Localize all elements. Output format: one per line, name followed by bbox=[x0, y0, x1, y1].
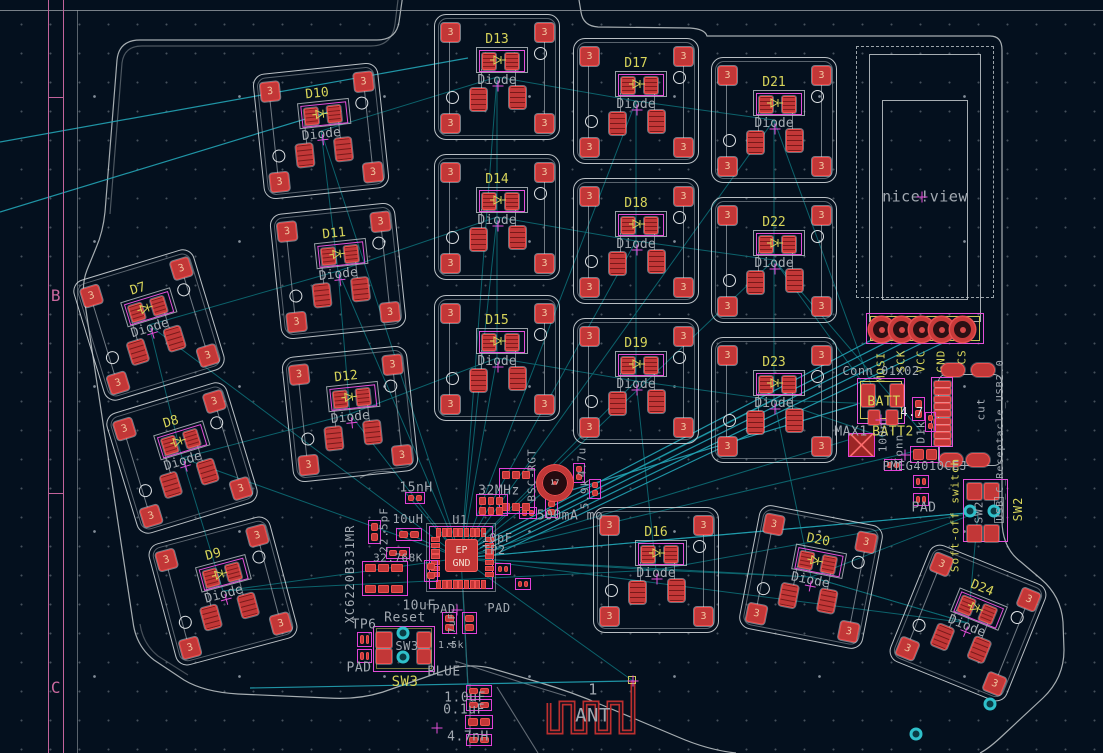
diode-symbol-icon bbox=[341, 391, 358, 403]
anchor-cross bbox=[917, 192, 928, 203]
footprint-anchor bbox=[334, 274, 346, 286]
usb-pin-pad bbox=[934, 410, 951, 417]
pcb-canvas[interactable]: BC nice!view MOSISCKVCCGNDCS bbox=[0, 0, 1103, 753]
mcu-pad bbox=[442, 580, 447, 589]
frame-hline bbox=[0, 10, 1103, 11]
passive-component[interactable] bbox=[424, 560, 438, 582]
mount-pad[interactable]: 3 bbox=[580, 278, 599, 297]
diode-pad[interactable] bbox=[355, 388, 371, 406]
mcu-pad bbox=[447, 528, 452, 537]
mount-pad[interactable]: 3 bbox=[600, 607, 619, 626]
diode-symbol-icon bbox=[767, 238, 783, 248]
footprint-anchor bbox=[493, 81, 504, 92]
mcu-pad bbox=[453, 580, 458, 589]
footprint-anchor bbox=[804, 580, 817, 593]
silk-label: 4.7nH bbox=[447, 731, 489, 744]
diode-symbol-icon bbox=[629, 359, 645, 369]
locating-hole bbox=[723, 274, 736, 287]
silk-label: SW2 bbox=[1012, 497, 1024, 522]
key-D14[interactable]: 3333D14Diode bbox=[434, 154, 560, 280]
diode-pad[interactable] bbox=[505, 53, 519, 70]
mount-pad[interactable]: 3 bbox=[838, 621, 860, 643]
diode-symbol-icon bbox=[629, 79, 645, 89]
key-D23[interactable]: 3333D23Diode bbox=[711, 337, 837, 463]
switch-pad[interactable] bbox=[470, 369, 487, 392]
diode-symbol-icon bbox=[490, 55, 506, 65]
key-D10[interactable]: 3333D10Diode bbox=[252, 62, 390, 200]
key-D9[interactable]: 3333D9Diode bbox=[146, 514, 300, 668]
silk-label: 1 bbox=[588, 683, 598, 698]
switch-pad[interactable] bbox=[295, 143, 314, 168]
mount-pad[interactable]: 3 bbox=[812, 157, 831, 176]
footprint-anchor bbox=[493, 362, 504, 373]
key-reference: D22 bbox=[711, 215, 837, 230]
diode-symbol-icon bbox=[767, 378, 783, 388]
mount-pad[interactable]: 3 bbox=[441, 395, 460, 414]
ic-component[interactable] bbox=[362, 561, 408, 596]
locating-hole bbox=[585, 255, 598, 268]
passive-component[interactable] bbox=[357, 632, 372, 647]
usb-pin-pad bbox=[934, 418, 951, 425]
key-D24[interactable]: 3333D24Diode bbox=[886, 541, 1050, 705]
frame-row-label: B bbox=[51, 288, 61, 304]
diode-symbol-icon bbox=[629, 219, 645, 229]
locating-hole bbox=[534, 47, 547, 60]
switch-pad[interactable] bbox=[363, 420, 382, 445]
switch-pad[interactable] bbox=[351, 277, 370, 302]
mcu-pad bbox=[431, 554, 440, 559]
switch-pad[interactable] bbox=[786, 269, 803, 292]
key-reference: D15 bbox=[434, 313, 560, 328]
passive-component[interactable] bbox=[515, 578, 531, 590]
mcu-pad bbox=[436, 528, 441, 537]
mount-pad[interactable]: 3 bbox=[812, 297, 831, 316]
diode-pad[interactable] bbox=[664, 546, 678, 563]
switch-pad[interactable] bbox=[609, 252, 626, 275]
key-reference: D19 bbox=[573, 336, 699, 351]
footprint-anchor bbox=[770, 264, 781, 275]
key-reference: D18 bbox=[573, 196, 699, 211]
mcu-pad bbox=[458, 580, 463, 589]
key-reference: D17 bbox=[573, 56, 699, 71]
switch-pad[interactable] bbox=[324, 426, 343, 451]
frame-row-label: C bbox=[51, 680, 61, 696]
passive-component[interactable] bbox=[913, 475, 929, 488]
silk-label: SW2 bbox=[974, 501, 985, 524]
locating-hole bbox=[585, 115, 598, 128]
diode-symbol-icon bbox=[767, 98, 783, 108]
usb-pin-pad bbox=[934, 388, 951, 395]
locating-hole bbox=[585, 395, 598, 408]
footprint-anchor bbox=[493, 221, 504, 232]
switch-pad[interactable] bbox=[786, 409, 803, 432]
mount-pad[interactable]: 3 bbox=[674, 138, 693, 157]
passive-component[interactable] bbox=[396, 528, 422, 541]
frame-tick bbox=[48, 97, 63, 98]
switch-pad[interactable] bbox=[609, 392, 626, 415]
footprint-anchor bbox=[632, 245, 643, 256]
passive-component[interactable] bbox=[495, 563, 511, 575]
footprint-anchor bbox=[346, 417, 358, 429]
switch-pad[interactable] bbox=[668, 579, 685, 602]
silk-label: 15nH bbox=[399, 482, 432, 495]
mount-pad[interactable]: 3 bbox=[694, 607, 713, 626]
mount-pad[interactable]: 3 bbox=[535, 395, 554, 414]
diode-symbol-icon bbox=[329, 248, 346, 260]
key-reference: D14 bbox=[434, 172, 560, 187]
mcu-pad bbox=[475, 580, 480, 589]
mount-pad[interactable]: 3 bbox=[269, 172, 290, 193]
silk-label: BATT bbox=[867, 396, 900, 409]
silk-label: BLUE bbox=[427, 666, 460, 679]
key-reference: D23 bbox=[711, 355, 837, 370]
switch-pad[interactable] bbox=[786, 129, 803, 152]
mcu-pad bbox=[464, 528, 469, 537]
key-D11[interactable]: 3333D11Diode bbox=[269, 202, 407, 340]
back-copper-pad[interactable] bbox=[984, 698, 997, 711]
diode-symbol-icon bbox=[490, 195, 506, 205]
usb-pin-pad bbox=[934, 432, 951, 439]
silk-label: 5.9k bbox=[580, 479, 591, 510]
switch-pad[interactable] bbox=[509, 86, 526, 109]
switch-pad[interactable] bbox=[747, 271, 764, 294]
key-D19[interactable]: 3333D19Diode bbox=[573, 318, 699, 444]
diode-symbol-icon bbox=[312, 108, 329, 120]
switch-pad[interactable] bbox=[509, 226, 526, 249]
usb-pin-pad bbox=[934, 425, 951, 432]
back-copper-pad[interactable] bbox=[910, 728, 923, 741]
locating-hole bbox=[811, 370, 824, 383]
key-D8[interactable]: 3333D8Diode bbox=[103, 379, 260, 536]
diode-pad[interactable] bbox=[326, 105, 342, 123]
switch-pad[interactable] bbox=[629, 581, 646, 604]
diode-symbol-icon bbox=[490, 336, 506, 346]
silk-label: TP2 bbox=[482, 544, 505, 556]
locating-hole bbox=[723, 414, 736, 427]
mount-pad[interactable]: 3 bbox=[535, 114, 554, 133]
switch-pad[interactable] bbox=[609, 112, 626, 135]
locating-hole bbox=[811, 90, 824, 103]
mcu-pad bbox=[485, 560, 494, 565]
silk-label: 0.1uF bbox=[443, 704, 485, 717]
passive-component[interactable] bbox=[462, 612, 477, 634]
switch-pad[interactable] bbox=[747, 131, 764, 154]
mcu-pad bbox=[431, 537, 440, 542]
diode-pad[interactable] bbox=[505, 193, 519, 210]
usb-pin-pad bbox=[934, 403, 951, 410]
anchor-cross bbox=[900, 450, 911, 461]
mcu-pad bbox=[447, 580, 452, 589]
mount-pad[interactable]: 3 bbox=[718, 297, 737, 316]
silk-label: Soft-off switch bbox=[950, 458, 961, 572]
silk-label: XC6220B331MR bbox=[344, 525, 356, 624]
key-D16[interactable]: 3333D16Diode bbox=[593, 507, 719, 633]
silk-label: 17 bbox=[550, 480, 559, 487]
frame-vline-inner bbox=[63, 0, 64, 753]
key-D20[interactable]: 3333D20Diode bbox=[737, 503, 885, 651]
key-D7[interactable]: 3333D7Diode bbox=[70, 246, 227, 403]
key-D13[interactable]: 3333D13Diode bbox=[434, 14, 560, 140]
mcu-pad bbox=[485, 566, 494, 571]
silk-label: 100n bbox=[878, 422, 889, 453]
usb-pin-pad bbox=[934, 381, 951, 388]
diode-pad[interactable] bbox=[644, 77, 658, 94]
locating-hole bbox=[605, 584, 618, 597]
back-copper-pad[interactable] bbox=[397, 627, 410, 640]
mount-pad[interactable]: 3 bbox=[812, 437, 831, 456]
mount-pad[interactable]: 3 bbox=[718, 437, 737, 456]
silk-label: 4.7uF bbox=[448, 612, 458, 647]
key-D22[interactable]: 3333D22Diode bbox=[711, 197, 837, 323]
locating-hole bbox=[534, 328, 547, 341]
anchor-cross bbox=[876, 415, 887, 426]
silk-label: U1 bbox=[452, 514, 467, 526]
silk-label: 4.7 bbox=[900, 406, 923, 418]
mount-pad[interactable]: 3 bbox=[286, 312, 307, 333]
switch-pad[interactable] bbox=[312, 283, 331, 308]
silk-label: PAD bbox=[912, 502, 937, 515]
locating-hole bbox=[693, 540, 706, 553]
mount-pad[interactable]: 3 bbox=[674, 278, 693, 297]
locating-hole bbox=[673, 71, 686, 84]
mount-pad[interactable]: 3 bbox=[363, 162, 384, 183]
silk-label: 500mA mo bbox=[537, 510, 604, 523]
diode-pad[interactable] bbox=[782, 376, 796, 393]
locating-hole bbox=[446, 372, 459, 385]
switch-pad[interactable] bbox=[648, 390, 665, 413]
diode-symbol-icon bbox=[649, 548, 665, 558]
key-D15[interactable]: 3333D15Diode bbox=[434, 295, 560, 421]
silk-label: 4.7u bbox=[577, 447, 588, 478]
switch-pad[interactable] bbox=[470, 88, 487, 111]
diode-pad[interactable] bbox=[782, 236, 796, 253]
mcu-pad bbox=[470, 580, 475, 589]
mount-pad[interactable]: 3 bbox=[392, 445, 413, 466]
locating-hole bbox=[534, 187, 547, 200]
silk-label: TP6 bbox=[352, 619, 377, 632]
mcu-pad bbox=[431, 543, 440, 548]
silk-label: PAD bbox=[487, 602, 510, 614]
mcu-pad bbox=[485, 572, 494, 577]
silk-label: cut bbox=[976, 398, 987, 421]
locating-hole bbox=[811, 230, 824, 243]
footprint-anchor bbox=[317, 134, 329, 146]
diode-pad[interactable] bbox=[644, 357, 658, 374]
silk-label: D1k bbox=[916, 421, 927, 444]
silk-label: 22.5pF bbox=[379, 507, 390, 553]
mcu-pad bbox=[475, 528, 480, 537]
mount-pad[interactable]: 3 bbox=[580, 418, 599, 437]
diode-pad[interactable] bbox=[782, 96, 796, 113]
anchor-cross bbox=[452, 605, 463, 616]
key-D18[interactable]: 3333D18Diode bbox=[573, 178, 699, 304]
silk-label: SW3 bbox=[395, 640, 418, 652]
mcu-pad bbox=[453, 528, 458, 537]
footprint-anchor bbox=[770, 124, 781, 135]
mcu-pad bbox=[431, 549, 440, 554]
silk-label: BSC-RGT bbox=[527, 448, 538, 501]
frame-vline-gray bbox=[77, 10, 78, 753]
locating-hole bbox=[723, 134, 736, 147]
locating-hole bbox=[446, 91, 459, 104]
mount-pad[interactable]: 3 bbox=[380, 302, 401, 323]
footprint-anchor bbox=[632, 385, 643, 396]
anchor-cross bbox=[432, 723, 443, 734]
mount-pad[interactable]: 3 bbox=[745, 603, 767, 625]
mount-pad[interactable]: 3 bbox=[441, 114, 460, 133]
key-D21[interactable]: 3333D21Diode bbox=[711, 57, 837, 183]
silk-label: SW3 bbox=[392, 675, 419, 689]
mcu-pad bbox=[481, 580, 486, 589]
mount-pad[interactable]: 3 bbox=[441, 254, 460, 273]
header-pad-CS[interactable] bbox=[950, 317, 975, 342]
mount-pad[interactable]: 3 bbox=[580, 138, 599, 157]
mcu-pad bbox=[470, 528, 475, 537]
frame-vline-outer bbox=[48, 0, 49, 753]
silk-label: PAD bbox=[347, 662, 372, 675]
locating-hole bbox=[446, 231, 459, 244]
mcu-pad bbox=[458, 528, 463, 537]
usb-pin-pad bbox=[934, 396, 951, 403]
silk-label: 32.768K bbox=[373, 553, 423, 564]
mount-pad[interactable]: 3 bbox=[718, 157, 737, 176]
silk-label: 32MHz bbox=[478, 485, 520, 498]
switch-pad[interactable] bbox=[747, 411, 764, 434]
diode-pad[interactable] bbox=[343, 245, 359, 263]
mount-pad[interactable]: 3 bbox=[535, 254, 554, 273]
silk-label: MAX1 bbox=[834, 426, 867, 439]
silk-label: ANT bbox=[575, 707, 611, 726]
key-reference: D16 bbox=[593, 525, 719, 540]
frame-tick bbox=[48, 493, 63, 494]
mount-pad[interactable]: 3 bbox=[298, 455, 319, 476]
footprint-anchor bbox=[652, 574, 663, 585]
footprint-anchor bbox=[770, 404, 781, 415]
switch-pad[interactable] bbox=[648, 250, 665, 273]
mcu-exposed-pad: EPGND bbox=[445, 539, 478, 572]
anchor-cross bbox=[628, 676, 639, 687]
footprint-anchor bbox=[632, 105, 643, 116]
switch-pad[interactable] bbox=[509, 367, 526, 390]
switch-pad[interactable] bbox=[470, 228, 487, 251]
key-D17[interactable]: 3333D17Diode bbox=[573, 38, 699, 164]
locating-hole bbox=[673, 351, 686, 364]
mcu-pad bbox=[442, 528, 447, 537]
switch-pad[interactable] bbox=[648, 110, 665, 133]
silk-label: 10uH bbox=[393, 513, 424, 525]
locating-hole bbox=[673, 211, 686, 224]
silk-label: USB_C_Receptacle_USB2.0 bbox=[996, 359, 1006, 520]
key-D12[interactable]: 3333D12Diode bbox=[281, 345, 419, 483]
key-reference: D21 bbox=[711, 75, 837, 90]
switch-pad[interactable] bbox=[334, 137, 353, 162]
mcu-pad bbox=[464, 580, 469, 589]
silk-label: Reset bbox=[384, 612, 426, 625]
silk-label: Conn_01x02 bbox=[842, 365, 919, 377]
mount-pad[interactable]: 3 bbox=[674, 418, 693, 437]
diode-pad[interactable] bbox=[644, 217, 658, 234]
diode-pad[interactable] bbox=[505, 334, 519, 351]
key-reference: D13 bbox=[434, 32, 560, 47]
